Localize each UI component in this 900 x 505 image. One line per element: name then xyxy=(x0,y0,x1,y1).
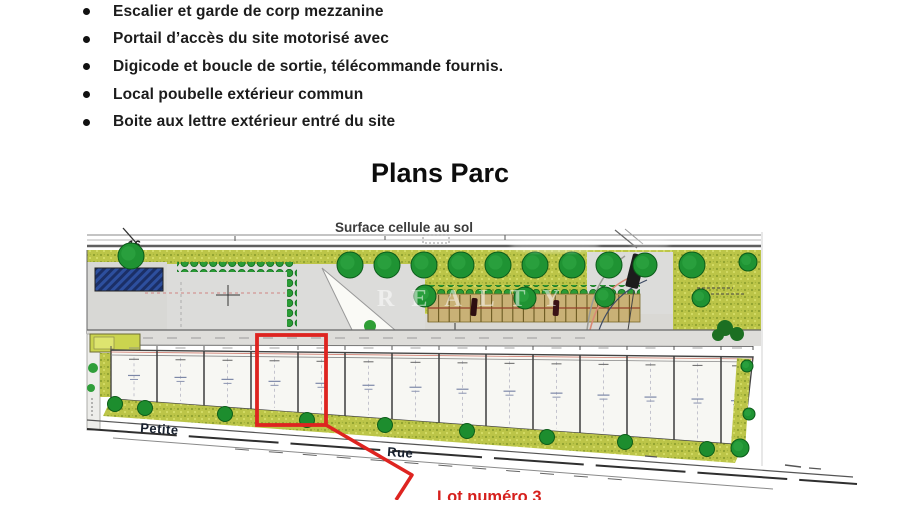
shrub-icon xyxy=(730,327,744,341)
shrub-icon xyxy=(87,384,95,392)
tree-icon xyxy=(374,252,400,278)
tree-icon xyxy=(522,252,548,278)
tree-icon xyxy=(679,252,705,278)
driveway xyxy=(87,330,761,347)
tree-icon xyxy=(485,252,511,278)
bullet-icon xyxy=(83,91,90,98)
tree-icon xyxy=(596,252,622,278)
bullet-item: Local poubelle extérieur commun xyxy=(83,81,503,109)
lot-callout-label: Lot numéro 3 xyxy=(437,488,542,500)
surface-caption: Surface cellule au sol xyxy=(335,220,473,235)
bush-icon xyxy=(218,407,233,422)
bullet-icon xyxy=(83,63,90,70)
site-plan-svg: 16 Surface cellule au sol xyxy=(85,218,865,500)
bush-column xyxy=(287,268,297,330)
tree-icon xyxy=(741,360,753,372)
street-name-right: Rue xyxy=(387,444,414,461)
street-name-left: Petite xyxy=(140,420,179,438)
tree-icon xyxy=(411,252,437,278)
bush-icon xyxy=(540,430,555,445)
site-plan-image: 16 Surface cellule au sol xyxy=(85,218,865,500)
tree-icon xyxy=(595,287,615,307)
tree-icon xyxy=(731,439,749,457)
bush-icon xyxy=(700,442,715,457)
bullet-item: Portail d’accès du site motorisé avec xyxy=(83,26,503,54)
blue-building-block xyxy=(95,268,163,291)
tree-icon xyxy=(692,289,710,307)
bush-icon xyxy=(460,424,475,439)
bullet-list: Escalier et garde de corp mezzanine Port… xyxy=(83,0,503,136)
bullet-text: Local poubelle extérieur commun xyxy=(113,86,363,104)
bullet-text: Portail d’accès du site motorisé avec xyxy=(113,30,389,48)
bullet-icon xyxy=(83,36,90,43)
bullet-item: Escalier et garde de corp mezzanine xyxy=(83,0,503,26)
watermark-text: REALTY xyxy=(377,286,577,312)
bullet-icon xyxy=(83,8,90,15)
bullet-text: Escalier et garde de corp mezzanine xyxy=(113,3,384,21)
bullet-item: Digicode et boucle de sortie, télécomman… xyxy=(83,53,503,81)
tree-icon xyxy=(118,243,144,269)
bullet-icon xyxy=(83,119,90,126)
tree-icon xyxy=(633,253,657,277)
tree-icon xyxy=(743,408,755,420)
bush-row xyxy=(177,262,295,272)
tree-icon xyxy=(448,252,474,278)
page-title: Plans Parc xyxy=(0,158,880,189)
bullet-text: Digicode et boucle de sortie, télécomman… xyxy=(113,58,503,76)
bullet-item: Boite aux lettre extérieur entré du site xyxy=(83,108,503,136)
bush-icon xyxy=(378,418,393,433)
shrub-icon xyxy=(712,329,724,341)
tree-icon xyxy=(559,252,585,278)
bush-icon xyxy=(138,401,153,416)
tree-icon xyxy=(739,253,757,271)
shrub-icon xyxy=(88,363,98,373)
tree-icon xyxy=(337,252,363,278)
bush-icon xyxy=(108,397,123,412)
bush-icon xyxy=(618,435,633,450)
bullet-text: Boite aux lettre extérieur entré du site xyxy=(113,113,395,131)
